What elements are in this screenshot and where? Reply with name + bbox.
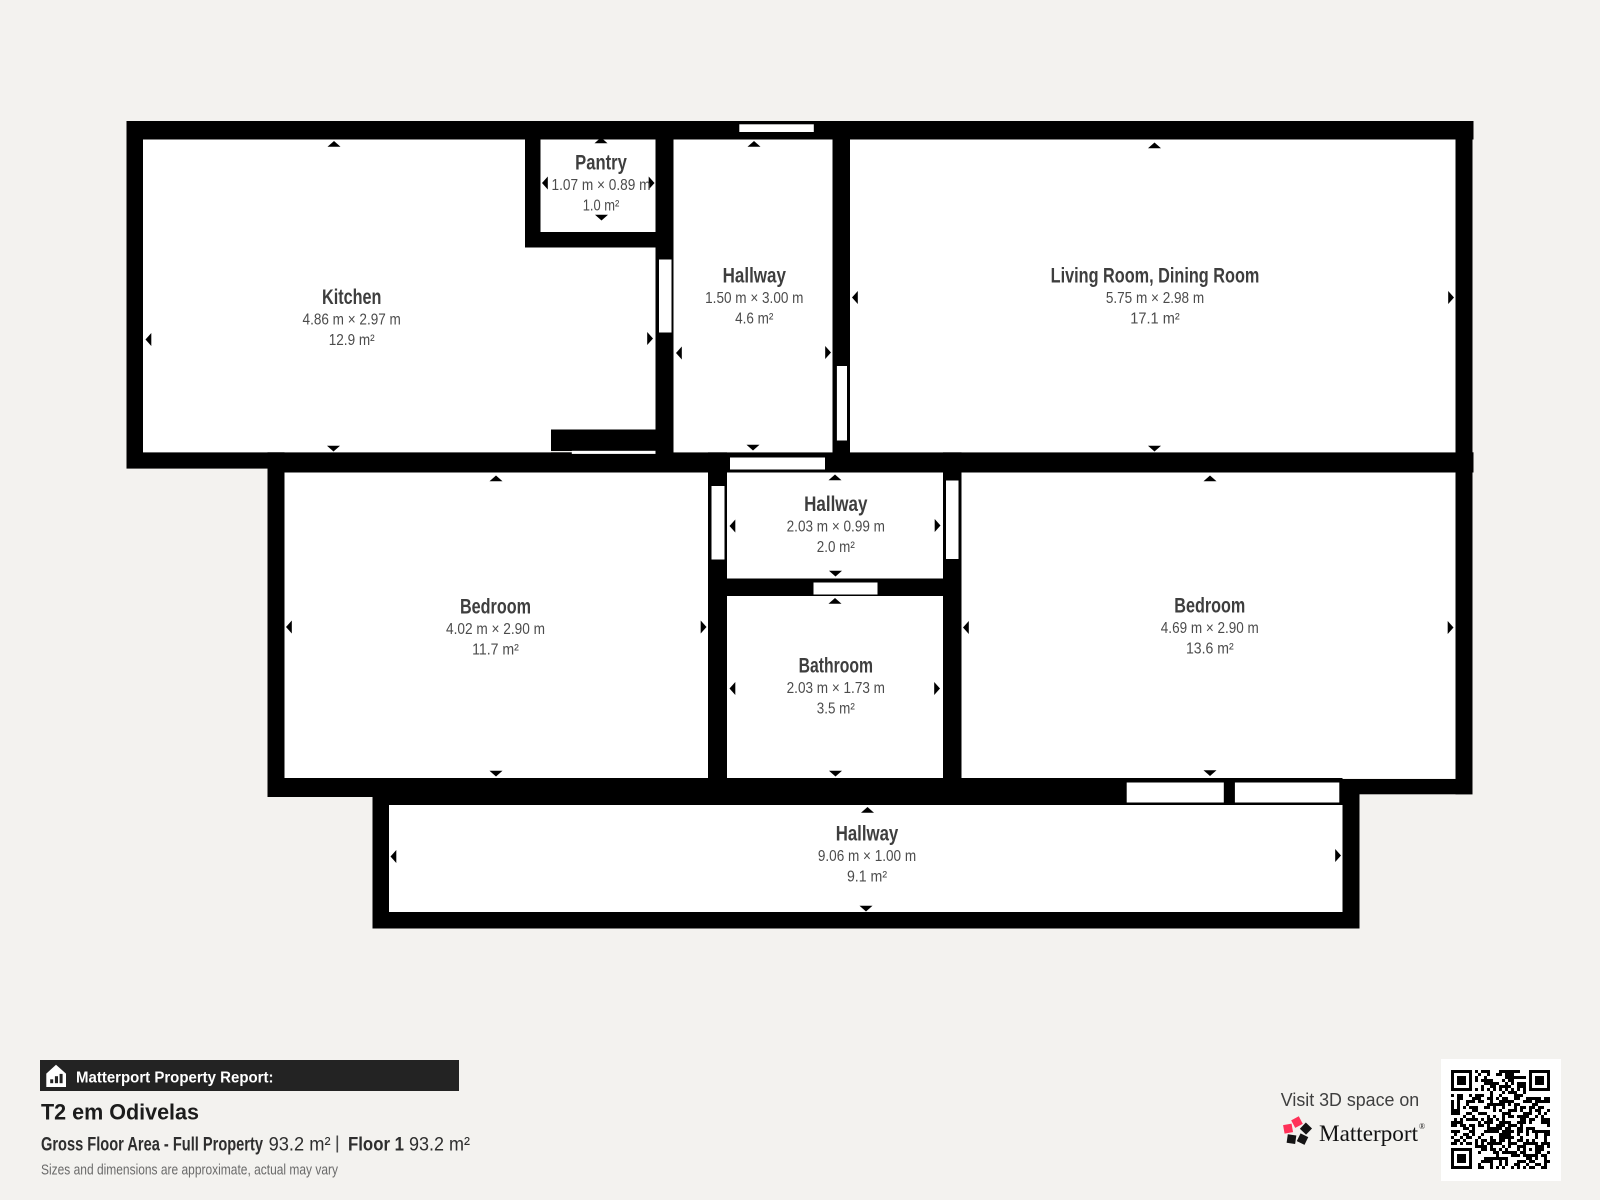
svg-text:Floor 1: Floor 1 <box>348 1135 404 1156</box>
svg-text:3.5 m²: 3.5 m² <box>817 701 855 718</box>
svg-text:1.07 m × 0.89 m: 1.07 m × 0.89 m <box>552 177 651 194</box>
svg-text:Visit 3D space on: Visit 3D space on <box>1281 1089 1419 1110</box>
svg-text:11.7 m²: 11.7 m² <box>472 642 519 659</box>
svg-text:1.50 m × 3.00 m: 1.50 m × 3.00 m <box>705 290 803 307</box>
svg-text:Hallway: Hallway <box>804 493 868 516</box>
svg-text:4.02 m × 2.90 m: 4.02 m × 2.90 m <box>446 621 545 638</box>
svg-text:Matterport: Matterport <box>1319 1121 1419 1146</box>
svg-text:Matterport Property Report:: Matterport Property Report: <box>76 1070 274 1087</box>
svg-text:Pantry: Pantry <box>575 152 627 175</box>
svg-text:5.75 m × 2.98 m: 5.75 m × 2.98 m <box>1106 290 1204 307</box>
svg-text:12.9 m²: 12.9 m² <box>329 332 375 349</box>
svg-text:13.6 m²: 13.6 m² <box>1186 641 1234 658</box>
svg-text:17.1 m²: 17.1 m² <box>1130 311 1179 328</box>
svg-text:9.1 m²: 9.1 m² <box>847 869 887 886</box>
svg-text:4.69 m × 2.90 m: 4.69 m × 2.90 m <box>1161 620 1259 637</box>
svg-text:®: ® <box>1419 1122 1425 1131</box>
svg-text:Hallway: Hallway <box>836 823 899 846</box>
svg-text:Hallway: Hallway <box>723 265 787 288</box>
svg-text:Bedroom: Bedroom <box>460 596 531 619</box>
svg-text:Bathroom: Bathroom <box>799 655 873 678</box>
svg-text:Bedroom: Bedroom <box>1174 595 1245 618</box>
svg-text:2.0 m²: 2.0 m² <box>817 539 855 556</box>
svg-text:2.03 m × 1.73 m: 2.03 m × 1.73 m <box>787 680 885 697</box>
svg-text:4.86 m × 2.97 m: 4.86 m × 2.97 m <box>303 311 401 328</box>
svg-text:Sizes and dimensions are appro: Sizes and dimensions are approximate, ac… <box>41 1162 338 1179</box>
svg-text:4.6 m²: 4.6 m² <box>735 311 773 328</box>
svg-text:93.2 m²: 93.2 m² <box>409 1135 470 1156</box>
svg-text:Kitchen: Kitchen <box>322 286 381 309</box>
svg-text:2.03 m × 0.99 m: 2.03 m × 0.99 m <box>787 519 885 536</box>
svg-text:9.06 m × 1.00 m: 9.06 m × 1.00 m <box>818 848 916 865</box>
svg-text:Gross Floor Area - Full Proper: Gross Floor Area - Full Property <box>41 1135 263 1156</box>
svg-text:Living Room, Dining Room: Living Room, Dining Room <box>1051 265 1260 288</box>
svg-text:T2 em Odivelas: T2 em Odivelas <box>41 1100 199 1125</box>
svg-text:93.2 m²: 93.2 m² <box>269 1135 331 1156</box>
svg-text:1.0 m²: 1.0 m² <box>583 198 620 215</box>
